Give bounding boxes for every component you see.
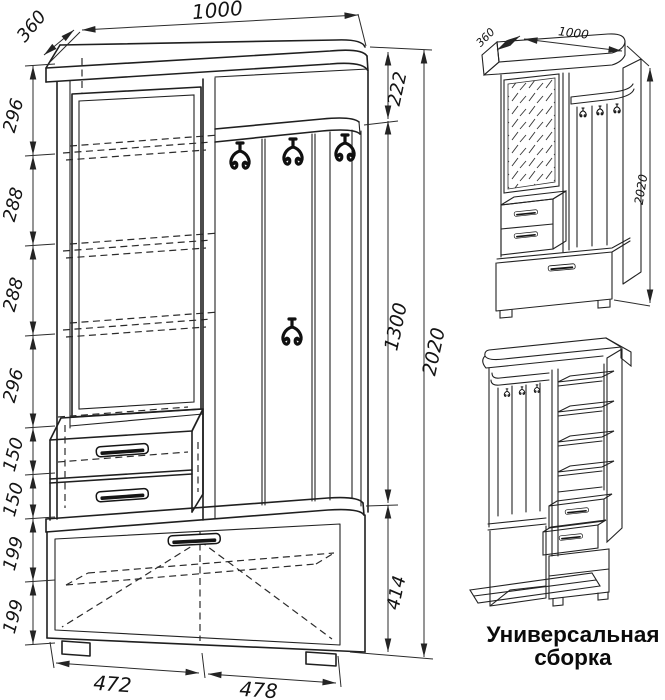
dim-label-150-a: 150 bbox=[0, 435, 28, 474]
dim-label-depth-360: 360 bbox=[13, 7, 51, 47]
dim-label-296-bottom: 296 bbox=[0, 366, 28, 405]
coat-hook-icon bbox=[519, 387, 524, 395]
iso-dim-height-2020: 2020 bbox=[632, 173, 651, 206]
coat-hook-icon bbox=[336, 135, 354, 160]
drawer-handle bbox=[565, 508, 589, 515]
technical-drawing-page: 296 288 288 296 150 150 199 199 1000 360… bbox=[0, 0, 665, 700]
drawer-handle bbox=[559, 534, 583, 541]
drawer-handle bbox=[96, 443, 149, 457]
iso2-shelf-column bbox=[558, 364, 614, 492]
front-view bbox=[46, 40, 368, 666]
coat-hook-icon bbox=[284, 139, 302, 164]
iso-hat-shelf bbox=[571, 84, 634, 247]
iso2-hook-panel bbox=[489, 368, 549, 527]
iso-canopy bbox=[482, 34, 625, 75]
iso-drawer-unit bbox=[501, 191, 566, 255]
coat-hook-icon bbox=[597, 106, 603, 115]
iso2-right-wall bbox=[607, 349, 622, 542]
dim-label-478: 478 bbox=[239, 677, 279, 700]
dim-label-height-2020: 2020 bbox=[418, 326, 450, 378]
coat-hook-icon bbox=[580, 108, 586, 117]
coat-hook-icon bbox=[534, 385, 539, 393]
door-handle bbox=[548, 264, 575, 272]
iso2-open-drawers bbox=[543, 494, 612, 555]
dim-label-150-b: 150 bbox=[0, 480, 28, 519]
coat-hook-icon bbox=[504, 389, 509, 397]
canopy-shelf bbox=[46, 40, 368, 82]
coat-hook-icon bbox=[614, 104, 620, 113]
iso-view-universal bbox=[470, 338, 631, 606]
dim-label-199-b: 199 bbox=[0, 597, 28, 636]
furniture-drawing: 296 288 288 296 150 150 199 199 1000 360… bbox=[0, 0, 665, 700]
center-divider-panel bbox=[203, 78, 215, 520]
drawer-handle bbox=[514, 210, 538, 217]
caption: Универсальная сборка bbox=[486, 622, 659, 670]
dim-label-296-top: 296 bbox=[0, 96, 28, 135]
dim-label-288-b: 288 bbox=[0, 275, 28, 314]
drawer-handle bbox=[96, 488, 149, 502]
coat-hook-panel bbox=[215, 69, 368, 512]
drawer-unit bbox=[50, 407, 203, 520]
dimensions-bottom: 472 478 bbox=[50, 642, 341, 700]
dim-label-199-a: 199 bbox=[0, 534, 28, 573]
iso-dim-width-1000: 1000 bbox=[557, 24, 589, 42]
door-handle bbox=[168, 533, 220, 546]
drawer-handle bbox=[514, 232, 538, 239]
dim-label-414: 414 bbox=[383, 574, 411, 612]
mirror-panel bbox=[72, 87, 201, 417]
iso2-canopy bbox=[483, 338, 631, 368]
bench-top bbox=[46, 498, 364, 532]
left-side-panel bbox=[57, 58, 82, 519]
dim-label-288-a: 288 bbox=[0, 185, 28, 224]
bottom-cabinet bbox=[47, 515, 365, 666]
iso-dim-depth-360: 360 bbox=[474, 26, 498, 50]
caption-line-1: Универсальная bbox=[486, 622, 659, 647]
hidden-shelves bbox=[63, 135, 219, 337]
caption-line-2: сборка bbox=[534, 645, 612, 670]
iso-mirror bbox=[504, 74, 559, 193]
dim-label-1300: 1300 bbox=[380, 301, 412, 353]
iso-view-assembled: 360 1000 2020 bbox=[474, 24, 651, 318]
dim-label-472: 472 bbox=[93, 671, 133, 698]
dim-label-width-1000: 1000 bbox=[191, 0, 244, 24]
coat-hook-icon bbox=[231, 143, 249, 168]
iso-dimensions: 360 1000 2020 bbox=[474, 24, 651, 306]
coat-hook-icon bbox=[283, 319, 301, 344]
